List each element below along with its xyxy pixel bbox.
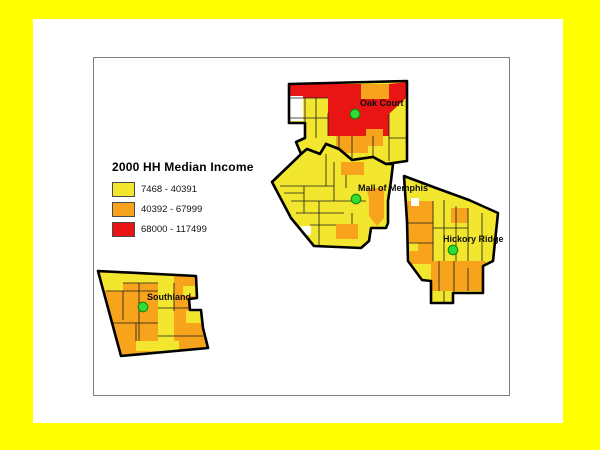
- legend-items: 7468 - 4039140392 - 6799968000 - 117499: [112, 182, 254, 236]
- tract-fill-high: [289, 84, 361, 98]
- legend-title: 2000 HH Median Income: [112, 160, 254, 174]
- legend-label-mid: 40392 - 67999: [141, 204, 202, 215]
- marker-label-mall-of-memphis: Mall of Memphis: [358, 183, 428, 194]
- tract-fill-low: [186, 311, 201, 323]
- marker-label-oak-court: Oak Court: [360, 98, 404, 109]
- tract-fill-low: [136, 341, 179, 351]
- region-mall-of-memphis: [272, 144, 393, 248]
- legend-swatch-low: [112, 182, 135, 197]
- legend-item-high: 68000 - 117499: [112, 222, 254, 236]
- tract-fill-mid: [361, 84, 389, 99]
- tract-fill-mid: [341, 162, 364, 175]
- slide: { "frame": { "border_color": "#FFFF00", …: [0, 0, 600, 450]
- marker-dot-southland: [138, 302, 148, 312]
- tract-fill-nodata: [411, 198, 419, 206]
- tract-fill-mid: [366, 129, 383, 146]
- map-frame: 2000 HH Median Income 7468 - 4039140392 …: [93, 57, 510, 396]
- marker-dot-hickory-ridge: [448, 245, 458, 255]
- tract-fill-mid: [451, 208, 468, 223]
- marker-label-hickory-ridge: Hickory Ridge: [443, 234, 504, 245]
- legend: 2000 HH Median Income 7468 - 4039140392 …: [112, 160, 254, 242]
- legend-label-low: 7468 - 40391: [141, 184, 197, 195]
- marker-label-southland: Southland: [147, 292, 191, 303]
- tract-fill-mid: [407, 201, 433, 264]
- legend-swatch-high: [112, 222, 135, 237]
- tract-fill-mid: [336, 224, 358, 239]
- marker-dot-oak-court: [350, 109, 360, 119]
- white-canvas: 2000 HH Median Income 7468 - 4039140392 …: [33, 19, 563, 423]
- marker-dot-mall-of-memphis: [351, 194, 361, 204]
- region-southland: [98, 271, 208, 356]
- legend-item-low: 7468 - 40391: [112, 182, 254, 196]
- legend-swatch-mid: [112, 202, 135, 217]
- tract-fill-nodata: [290, 96, 303, 121]
- legend-label-high: 68000 - 117499: [141, 224, 207, 235]
- tract-fill-low: [409, 243, 418, 251]
- legend-item-mid: 40392 - 67999: [112, 202, 254, 216]
